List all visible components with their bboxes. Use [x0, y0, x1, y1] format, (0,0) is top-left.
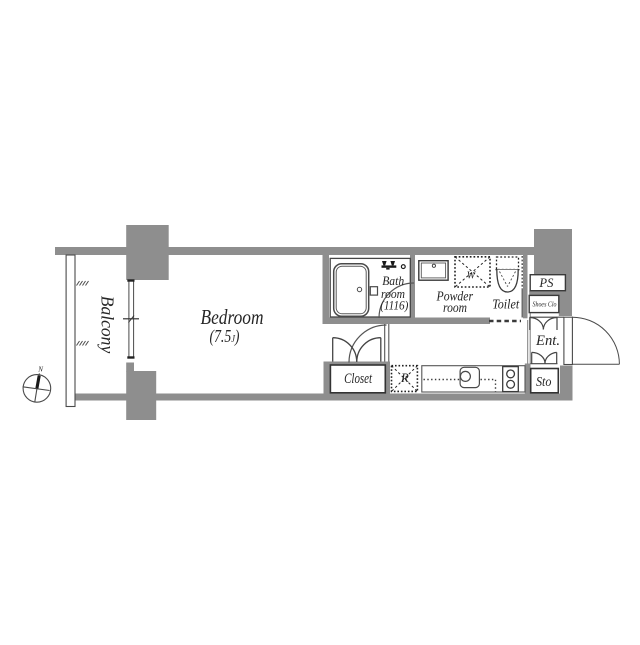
svg-text:N: N: [37, 365, 43, 373]
svg-text:Closet: Closet: [344, 371, 373, 387]
svg-text:W: W: [467, 269, 476, 281]
svg-text:Shoes Clo: Shoes Clo: [533, 300, 557, 308]
svg-text:Balcony: Balcony: [98, 296, 118, 354]
svg-text:Toilet: Toilet: [492, 297, 520, 312]
svg-text:room: room: [443, 300, 467, 315]
svg-text:Ent.: Ent.: [535, 333, 560, 349]
svg-text:(1116): (1116): [380, 299, 408, 313]
svg-text:PS: PS: [538, 275, 553, 290]
svg-text:(7.5J): (7.5J): [210, 326, 240, 347]
svg-text:Sto: Sto: [536, 374, 552, 389]
svg-text:Bath: Bath: [382, 274, 404, 288]
svg-text:R: R: [400, 371, 409, 385]
